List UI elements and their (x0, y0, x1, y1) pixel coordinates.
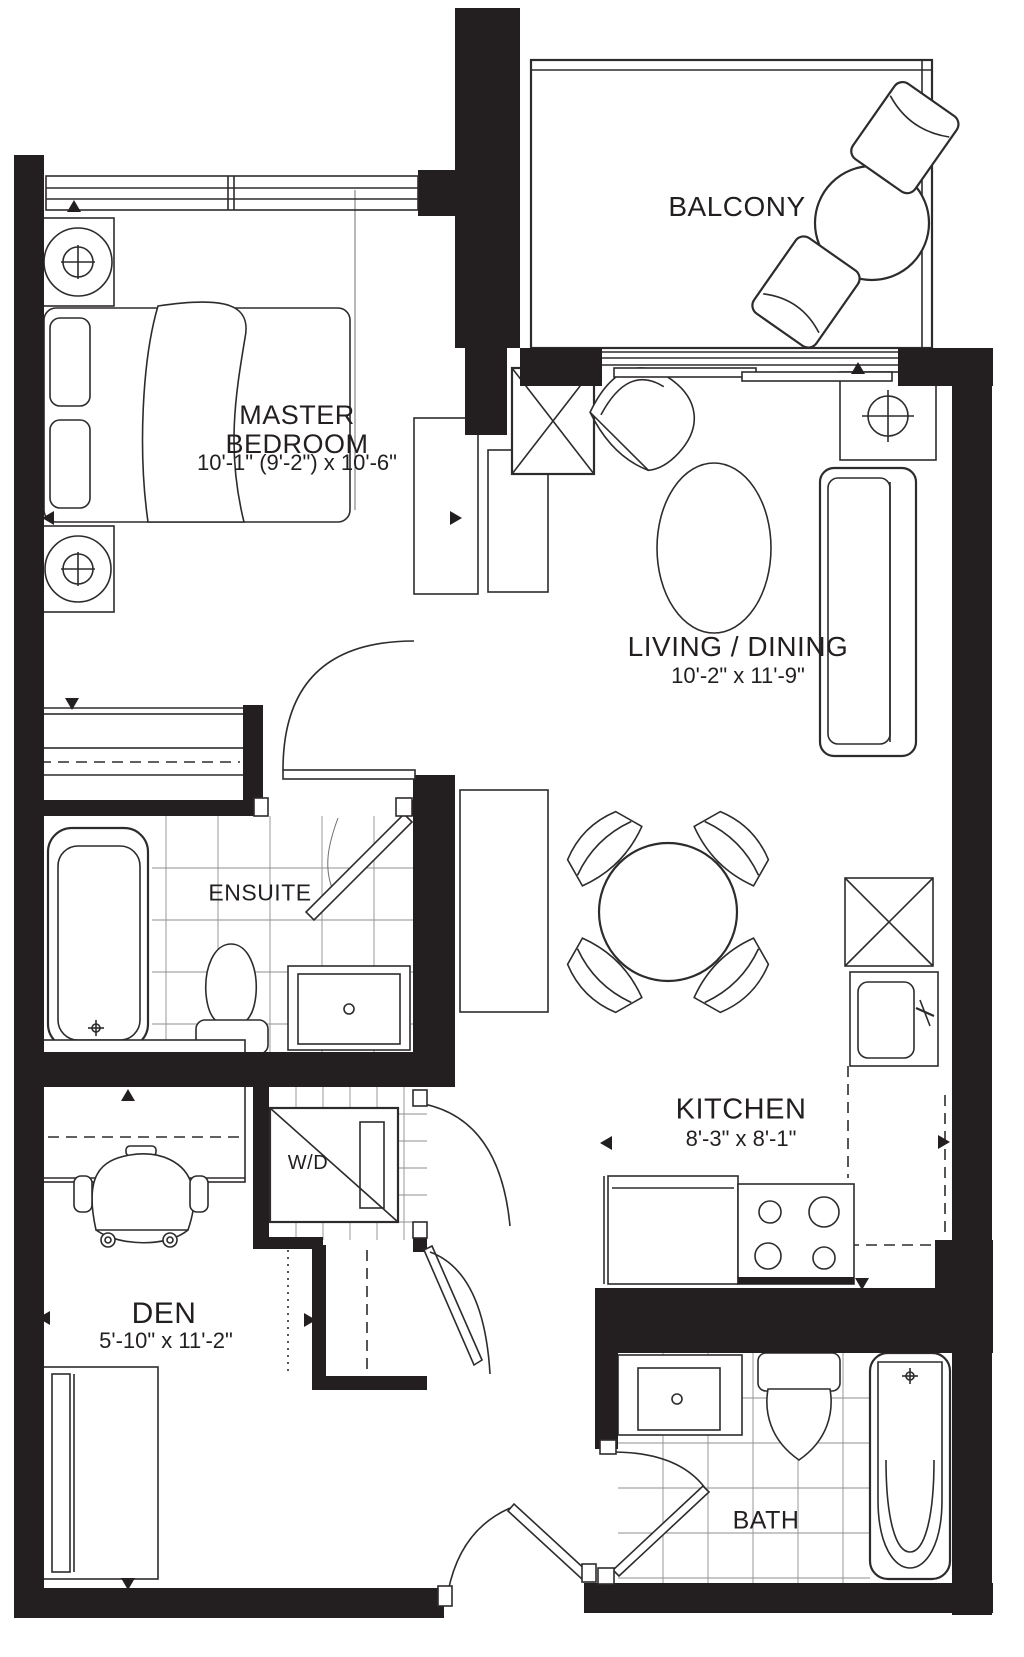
stove (738, 1184, 854, 1284)
bedroom-window (46, 176, 418, 210)
hall-cabinet (460, 790, 548, 1012)
room-label-living-dining: LIVING / DINING (628, 632, 849, 662)
closet-rod-lines (288, 1250, 367, 1374)
floor-plan-drawing (0, 0, 1024, 1657)
room-label-balcony: BALCONY (668, 192, 805, 222)
dining-table (599, 843, 737, 981)
wardrobe-1 (414, 418, 478, 594)
nightstand-bottom (42, 526, 114, 612)
room-dims-living-dining: 10'-2" x 11'-9" (671, 664, 805, 688)
room-label-bath: BATH (733, 1508, 800, 1535)
room-label-ensuite: ENSUITE (208, 881, 311, 906)
oval-table (657, 463, 771, 633)
door-hall-lower (424, 1246, 490, 1374)
room-label-kitchen: KITCHEN (676, 1094, 807, 1125)
kitchen-upper-cabinet (845, 878, 933, 966)
bath-toilet (758, 1353, 840, 1460)
bookshelf (40, 1367, 158, 1579)
room-label-den: DEN (132, 1298, 197, 1330)
door-bath (598, 1440, 709, 1584)
bedroom-closet (38, 708, 245, 775)
ensuite-tub (48, 828, 148, 1048)
ensuite-vanity-sink (288, 966, 410, 1050)
room-dims-den: 5'-10" x 11'-2" (99, 1329, 233, 1353)
door-hall-upper (413, 1090, 510, 1238)
bath-vanity-sink (618, 1355, 742, 1435)
room-dims-master-bedroom: 10'-1" (9'-2") x 10'-6" (197, 451, 397, 475)
ensuite-toilet (196, 944, 268, 1054)
balcony-sliding-door (602, 352, 898, 381)
sofa (820, 468, 916, 756)
room-label-laundry: W/D (288, 1153, 328, 1175)
bath-tub (870, 1353, 950, 1579)
floor-plan: BALCONY MASTER BEDROOM 10'-1" (9'-2") x … (0, 0, 1024, 1657)
door-entry (438, 1504, 596, 1606)
kitchen-base-counter (604, 1176, 738, 1284)
nightstand-top (42, 218, 114, 306)
kitchen-sink (850, 972, 938, 1066)
ensuite-leader-line (328, 818, 338, 888)
door-master-bedroom (283, 641, 415, 779)
room-dims-kitchen: 8'-3" x 8'-1" (686, 1127, 797, 1151)
